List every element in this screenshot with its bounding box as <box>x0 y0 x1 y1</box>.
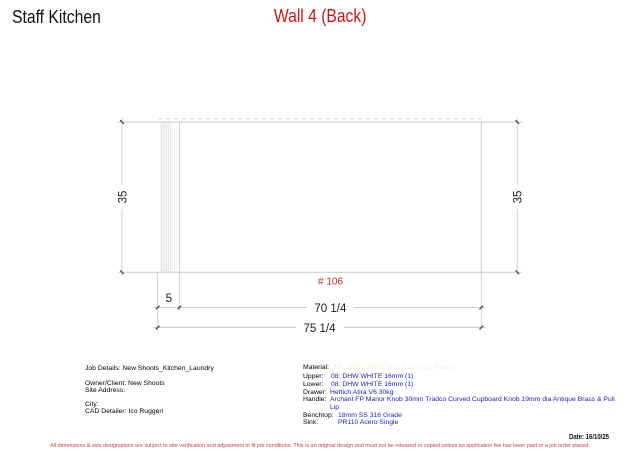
svg-text:# 106: # 106 <box>318 277 343 288</box>
svg-text:35: 35 <box>117 191 129 204</box>
svg-text:75 1/4: 75 1/4 <box>304 323 337 335</box>
svg-text:5: 5 <box>166 293 172 305</box>
svg-text:35: 35 <box>513 191 525 204</box>
svg-text:70 1/4: 70 1/4 <box>314 303 347 315</box>
